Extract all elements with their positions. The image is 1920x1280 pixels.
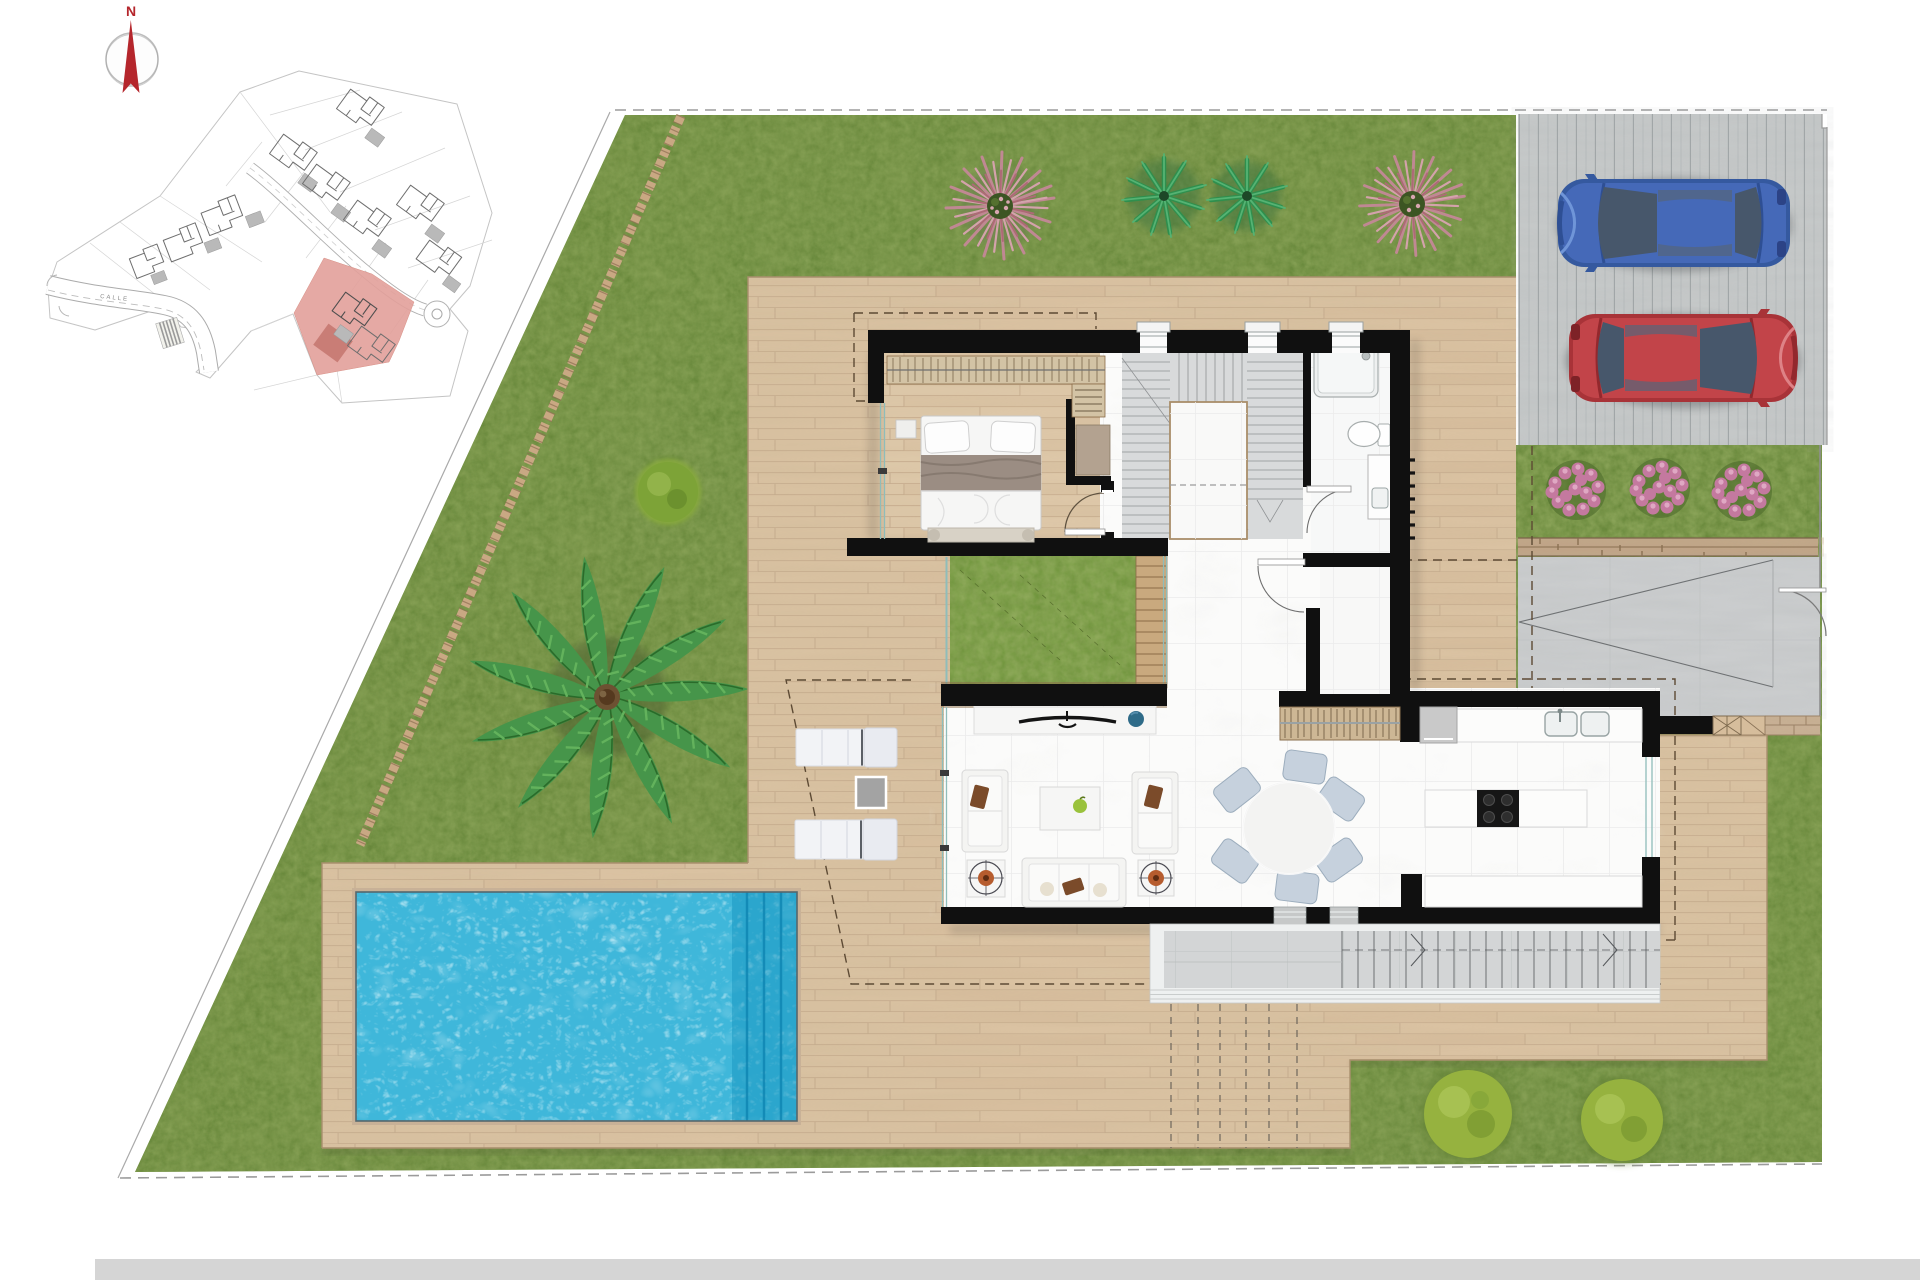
svg-text:N: N — [126, 3, 136, 19]
